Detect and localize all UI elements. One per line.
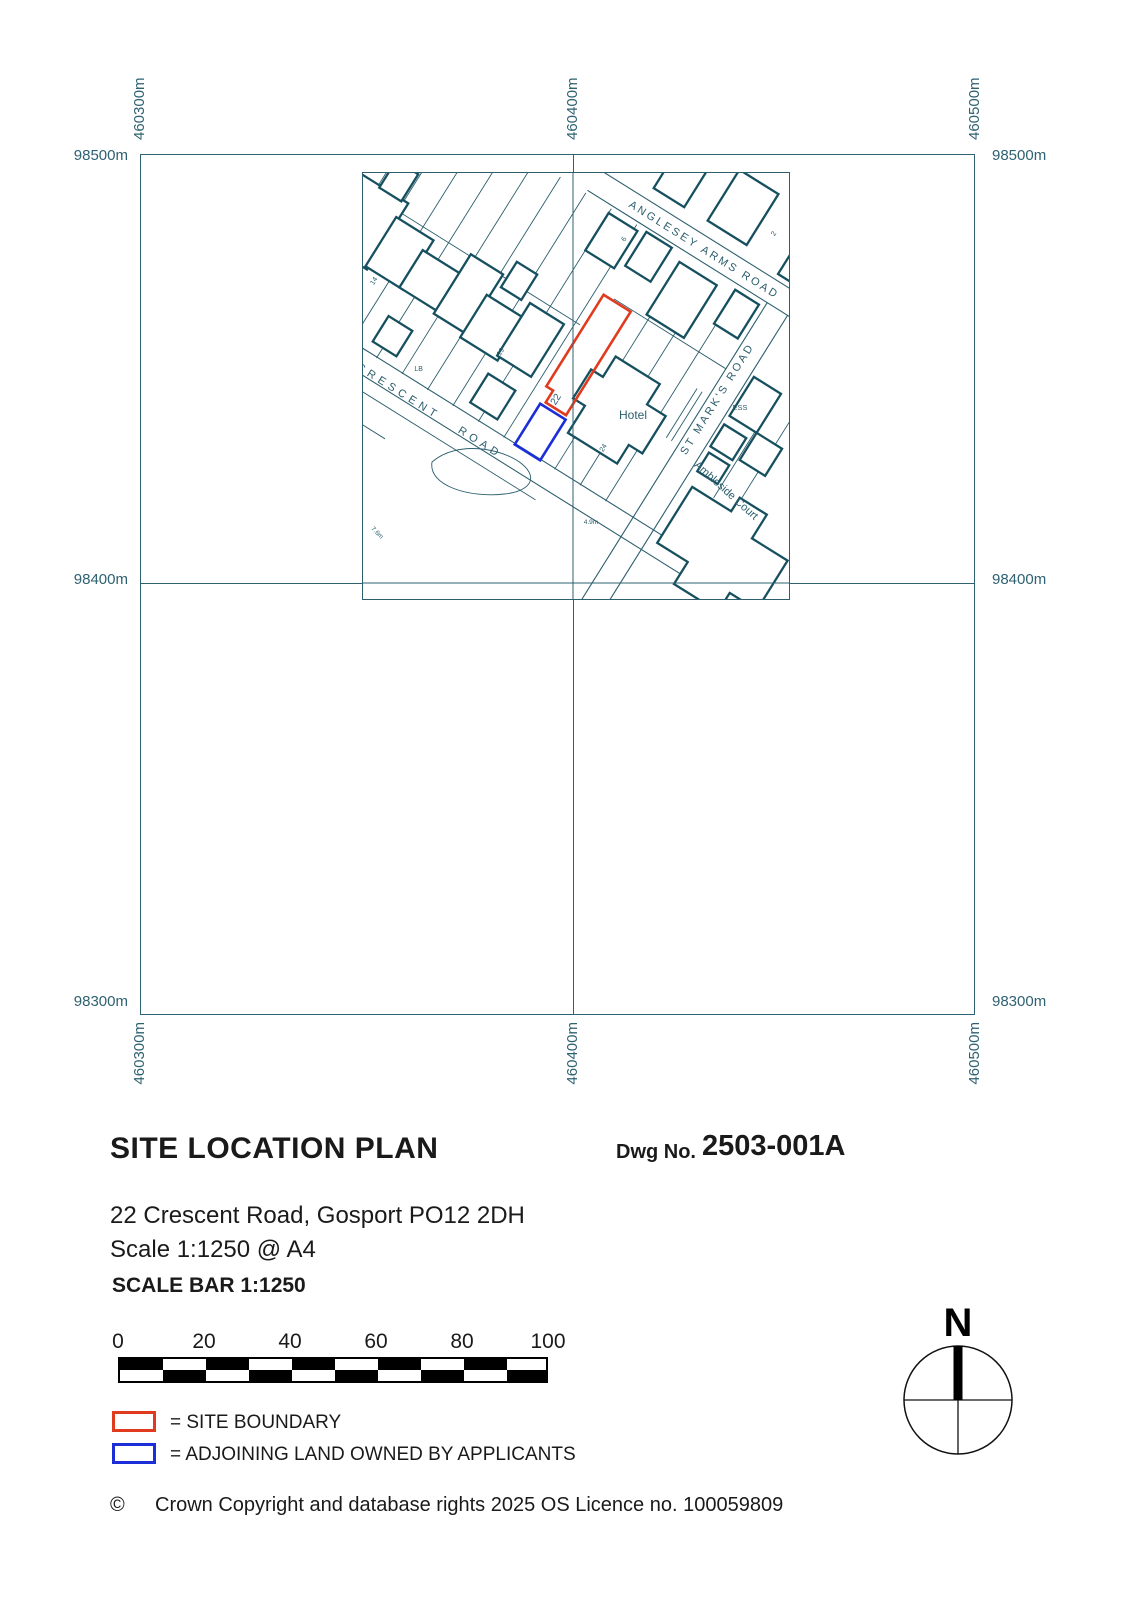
north-arrow-svg: N: [880, 1296, 1040, 1466]
northing-label-left-3: 98300m: [28, 993, 128, 1010]
house-number-2: 2: [770, 230, 778, 237]
northing-label-right-1: 98500m: [992, 147, 1092, 164]
spot-height-76: 7.6m: [369, 525, 384, 540]
scale-tick-60: 60: [364, 1330, 387, 1354]
copyright-symbol: ©: [110, 1494, 125, 1517]
north-arrow: N: [880, 1296, 1040, 1466]
hotel-label: Hotel: [619, 408, 647, 422]
site-location-plan-sheet: 460300m 460400m 460500m 460300m 460400m …: [0, 0, 1132, 1600]
site-map-svg: CRESCENT ROAD ANGLESEY ARMS ROAD ST MARK…: [362, 172, 790, 600]
spot-height-49: 4.9m: [584, 519, 598, 526]
easting-label-bottom-1: 460300m: [132, 1022, 148, 1122]
easting-label-top-1: 460300m: [132, 40, 148, 140]
dwg-number: 2503-001A: [702, 1130, 846, 1163]
adjoining-land-legend-label: = ADJOINING LAND OWNED BY APPLICANTS: [170, 1444, 576, 1466]
ess-label: ESS: [732, 403, 747, 412]
northing-label-left-1: 98500m: [28, 147, 128, 164]
northing-label-right-2: 98400m: [992, 571, 1092, 588]
scale-note: Scale 1:1250 @ A4: [110, 1236, 316, 1264]
scale-tick-40: 40: [278, 1330, 301, 1354]
scale-bar-title: SCALE BAR 1:1250: [112, 1274, 306, 1298]
adjoining-land-outline: [515, 404, 566, 461]
scale-tick-20: 20: [192, 1330, 215, 1354]
easting-label-top-3: 460500m: [967, 40, 983, 140]
easting-label-top-2: 460400m: [565, 40, 581, 140]
scale-tick-0: 0: [112, 1330, 124, 1354]
page-title: SITE LOCATION PLAN: [110, 1132, 438, 1166]
northing-label-right-3: 98300m: [992, 993, 1092, 1010]
site-boundary-legend-swatch: [112, 1411, 156, 1432]
scale-tick-100: 100: [530, 1330, 565, 1354]
adjoining-land-legend-swatch: [112, 1443, 156, 1464]
site-address: 22 Crescent Road, Gosport PO12 2DH: [110, 1202, 525, 1230]
os-map-extract: CRESCENT ROAD ANGLESEY ARMS ROAD ST MARK…: [362, 172, 790, 600]
site-boundary-legend-label: = SITE BOUNDARY: [170, 1412, 341, 1434]
scale-bar: [118, 1357, 548, 1383]
northing-label-left-2: 98400m: [28, 571, 128, 588]
easting-label-bottom-2: 460400m: [565, 1022, 581, 1122]
scale-bar-bottom-row: [120, 1370, 546, 1381]
hotel-building: [556, 349, 678, 472]
dwg-no-label: Dwg No.: [616, 1141, 696, 1164]
lb-label: LB: [414, 366, 423, 373]
copyright-text: Crown Copyright and database rights 2025…: [155, 1494, 783, 1517]
house-number-14: 14: [369, 276, 379, 286]
scale-tick-80: 80: [450, 1330, 473, 1354]
scale-bar-top-row: [120, 1359, 546, 1370]
north-letter: N: [944, 1301, 973, 1345]
easting-label-bottom-3: 460500m: [967, 1022, 983, 1122]
